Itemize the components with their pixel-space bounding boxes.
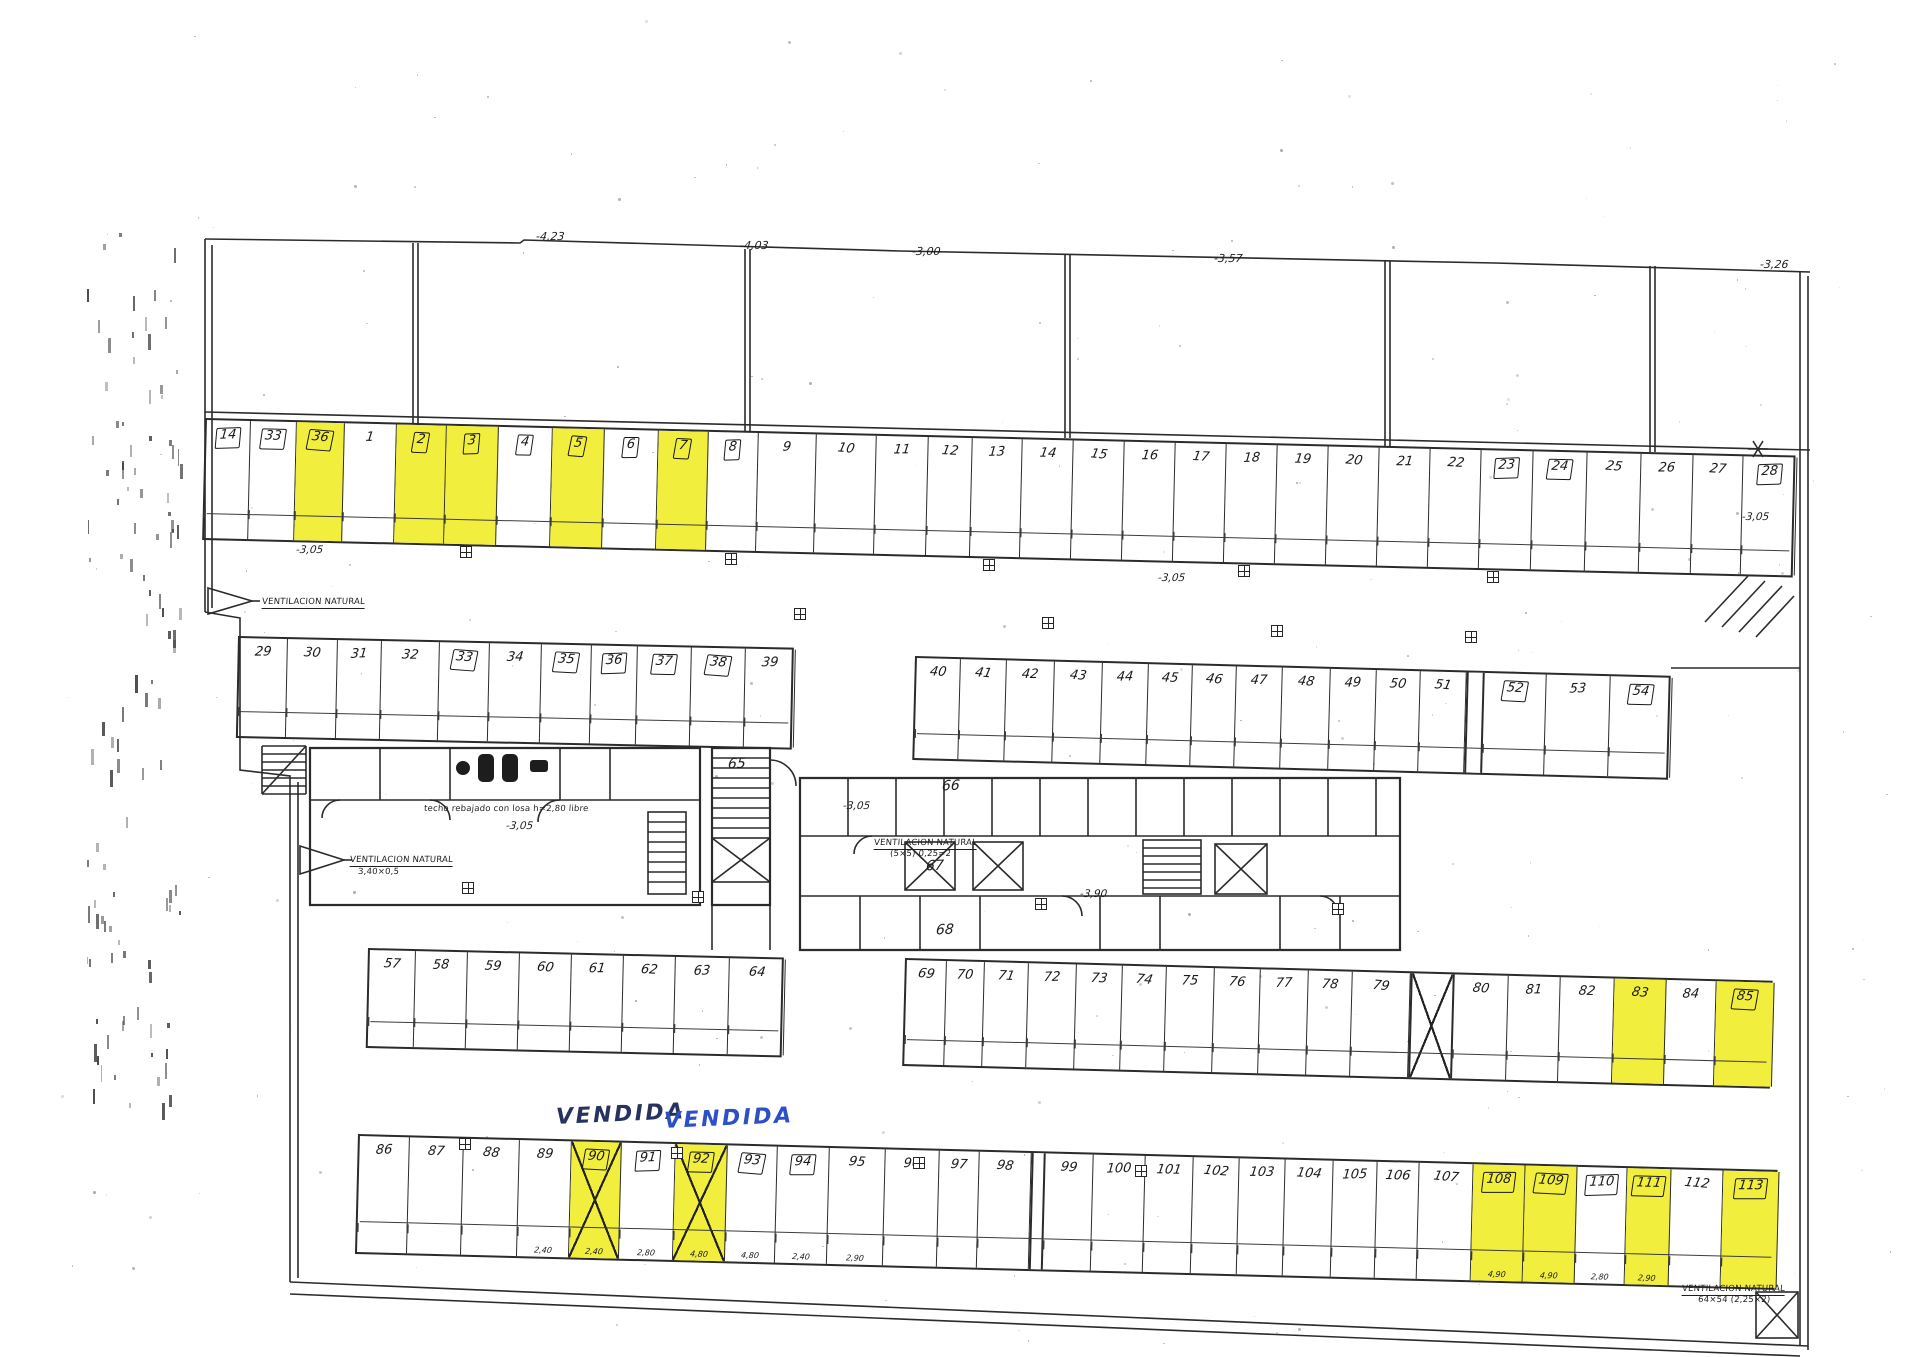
- level-label: -3,05: [505, 820, 533, 832]
- elevation-label: -3,00: [911, 245, 941, 258]
- scan-speck: [246, 570, 248, 572]
- parking-space-47: 47: [1234, 666, 1283, 767]
- parking-space-5: 5: [550, 428, 605, 547]
- dimension-tick: [550, 517, 552, 526]
- scan-speck: [355, 87, 357, 89]
- parking-row-third-row-right: 6970717273747576777879808182838485: [902, 958, 1773, 1089]
- scan-streak: [169, 1095, 172, 1107]
- parking-space-39: 39: [744, 649, 796, 748]
- scan-streak: [159, 594, 161, 609]
- scan-speck: [885, 1300, 887, 1302]
- space-number: 54: [1627, 684, 1655, 706]
- scan-speck: [1188, 913, 1191, 916]
- scan-streak: [122, 422, 124, 426]
- scan-speck: [1852, 948, 1854, 950]
- parking-space-14: 14: [204, 420, 251, 539]
- dimension-tick: [1668, 1256, 1670, 1265]
- space-number: 25: [1604, 460, 1624, 479]
- scan-speck: [1777, 85, 1779, 87]
- parking-space-36: 36: [294, 422, 345, 541]
- space-width-dim: 2,40: [533, 1245, 552, 1254]
- parking-space-19: 19: [1275, 445, 1329, 564]
- dimension-tick: [958, 730, 960, 739]
- scan-speck: [1507, 398, 1510, 401]
- scan-streak: [87, 957, 89, 964]
- parking-space-11: 11: [874, 436, 929, 555]
- parking-space-46: 46: [1190, 665, 1237, 766]
- scan-streak: [113, 892, 115, 897]
- dimension-tick: [813, 523, 815, 532]
- scan-speck: [1282, 1142, 1284, 1144]
- space-number: 62: [639, 963, 659, 982]
- scan-streak: [168, 512, 171, 516]
- dimension-tick: [1234, 737, 1236, 746]
- parking-space-40: 40: [914, 658, 961, 759]
- scan-speck: [1531, 652, 1533, 654]
- space-number: 50: [1388, 677, 1407, 695]
- scan-streak: [130, 559, 133, 572]
- dimension-tick: [413, 1018, 415, 1027]
- scan-speck: [1507, 1091, 1509, 1093]
- space-width-dim: 2,90: [845, 1253, 864, 1262]
- scan-speck: [1834, 63, 1836, 65]
- scan-speck: [1231, 825, 1233, 827]
- space-number: 15: [1088, 448, 1108, 467]
- parking-space-90: 902,40: [569, 1141, 622, 1258]
- column-marker-icon: [462, 882, 474, 894]
- parking-space-52: 52: [1482, 673, 1547, 775]
- scan-speck: [290, 1030, 292, 1032]
- dimension-tick: [1612, 1054, 1614, 1063]
- parking-space-17: 17: [1173, 443, 1227, 562]
- scan-speck: [149, 1216, 152, 1219]
- scan-speck: [1530, 862, 1532, 864]
- scan-streak: [167, 493, 169, 503]
- dimension-tick: [204, 509, 206, 518]
- scan-streak: [101, 1065, 103, 1082]
- dimension-tick: [294, 511, 296, 520]
- scan-speck: [1861, 1170, 1863, 1172]
- scan-streak: [154, 290, 157, 301]
- scan-streak: [103, 244, 106, 250]
- space-number: 60: [535, 960, 555, 979]
- plan-annotation: (5×5) 0,25=2: [890, 849, 952, 859]
- scan-speck: [1863, 979, 1865, 981]
- scan-speck: [882, 1131, 885, 1134]
- scan-speck: [1298, 185, 1300, 187]
- space-number: 29: [254, 645, 273, 663]
- scan-speck: [1528, 935, 1530, 937]
- space-number: 14: [215, 427, 241, 449]
- scan-streak: [180, 464, 183, 478]
- dimension-tick: [1306, 1046, 1308, 1055]
- scan-speck: [1281, 60, 1283, 62]
- parking-space-75: 75: [1164, 967, 1215, 1072]
- space-number: 42: [1021, 668, 1040, 686]
- scan-streak: [173, 640, 176, 653]
- scan-speck: [1159, 325, 1161, 327]
- scan-speck: [1794, 1273, 1796, 1275]
- space-number: 83: [1630, 986, 1650, 1005]
- dimension-tick: [1042, 1240, 1044, 1249]
- room-number: 68: [935, 922, 954, 939]
- scan-speck: [1863, 939, 1865, 941]
- scan-speck: [809, 382, 812, 385]
- scan-speck: [276, 899, 279, 902]
- parking-space-43: 43: [1052, 662, 1103, 763]
- scan-streak: [162, 1103, 164, 1120]
- dimension-tick: [1584, 542, 1586, 551]
- scan-speck: [617, 366, 619, 368]
- scan-speck: [1561, 621, 1563, 623]
- space-number: 69: [916, 967, 936, 986]
- plan-annotation: VENTILACION NATURAL: [262, 597, 366, 609]
- scan-speck: [873, 297, 875, 299]
- scan-speck: [1298, 1328, 1301, 1331]
- space-number: 47: [1250, 674, 1269, 692]
- parking-space-30: 30: [286, 639, 338, 738]
- parking-space-110: 1102,80: [1575, 1167, 1628, 1284]
- dimension-tick: [237, 707, 239, 716]
- space-number: 49: [1344, 676, 1362, 695]
- scan-speck: [1813, 480, 1815, 482]
- scan-streak: [132, 332, 134, 338]
- scan-streak: [169, 440, 172, 446]
- scan-speck: [1488, 1107, 1490, 1109]
- parking-space-81: 81: [1506, 976, 1561, 1081]
- parking-space-6: 6: [602, 429, 659, 548]
- scan-speck: [699, 1064, 701, 1066]
- scan-speck: [417, 74, 419, 76]
- scan-speck: [1432, 358, 1434, 360]
- space-number: 84: [1681, 988, 1700, 1006]
- dimension-tick: [1325, 535, 1327, 544]
- dimension-tick: [1452, 1049, 1454, 1058]
- space-number: 58: [432, 958, 450, 977]
- space-number: 20: [1343, 454, 1363, 473]
- scan-speck: [1002, 422, 1004, 424]
- scan-streak: [123, 951, 126, 958]
- space-number: 27: [1708, 462, 1728, 481]
- scan-streak: [150, 1024, 152, 1038]
- scan-speck: [106, 1194, 108, 1196]
- scan-streak: [148, 334, 151, 350]
- scan-speck: [920, 949, 922, 951]
- scan-speck: [1312, 1324, 1314, 1326]
- parking-space-78: 78: [1306, 971, 1353, 1076]
- parking-space-91: 912,80: [619, 1143, 676, 1260]
- scan-streak: [145, 693, 148, 707]
- scan-streak: [149, 590, 152, 597]
- scan-streak: [98, 320, 101, 334]
- scan-speck: [564, 416, 566, 418]
- space-number: 109: [1532, 1172, 1568, 1195]
- space-number: 41: [973, 666, 993, 685]
- scan-speck: [319, 1171, 322, 1174]
- dimension-tick: [1544, 745, 1546, 754]
- parking-space-22: 22: [1428, 449, 1482, 568]
- space-width-dim: 2,90: [1637, 1273, 1656, 1282]
- scan-streak: [162, 608, 164, 617]
- scan-speck: [507, 922, 509, 924]
- dimension-tick: [656, 520, 658, 529]
- space-number: 39: [761, 656, 780, 674]
- scan-speck: [1090, 80, 1092, 82]
- scan-streak: [160, 385, 163, 394]
- parking-space-60: 60: [518, 953, 572, 1050]
- elevation-label: -4,23: [535, 230, 565, 243]
- scan-speck: [1127, 845, 1129, 847]
- space-number: 17: [1190, 450, 1210, 469]
- dimension-tick: [1019, 528, 1021, 537]
- scan-speck: [616, 1324, 618, 1326]
- parking-space-59: 59: [466, 952, 520, 1049]
- parking-space-15: 15: [1071, 440, 1125, 559]
- dimension-tick: [460, 1226, 462, 1235]
- parking-space-38: 38: [690, 648, 746, 747]
- parking-row-third-row-left: 5758596061626364: [366, 948, 784, 1057]
- scan-streak: [151, 680, 153, 684]
- parking-space-31: 31: [336, 640, 382, 739]
- parking-space-73: 73: [1074, 965, 1123, 1070]
- scan-streak: [160, 760, 162, 769]
- space-number: 12: [940, 444, 960, 463]
- scan-streak: [161, 395, 163, 399]
- parking-space-87: 87: [407, 1137, 464, 1254]
- space-number: 45: [1160, 671, 1179, 689]
- parking-space-12: 12: [926, 437, 973, 556]
- scan-streak: [142, 768, 144, 780]
- dimension-tick: [936, 1238, 938, 1247]
- scan-speck: [1511, 907, 1513, 909]
- dimension-tick: [618, 1230, 620, 1239]
- parking-space-79: 79: [1350, 972, 1411, 1077]
- scan-speck: [1370, 579, 1372, 581]
- scan-speck: [1407, 655, 1409, 657]
- dimension-tick: [774, 1234, 776, 1243]
- space-number: 102: [1202, 1164, 1230, 1184]
- scan-speck: [1517, 430, 1519, 432]
- parking-space-58: 58: [414, 951, 468, 1048]
- scan-speck: [1028, 1340, 1030, 1342]
- parking-space-86: 86: [357, 1136, 410, 1253]
- space-number: 14: [1038, 447, 1057, 465]
- level-label: -3,90: [1079, 888, 1107, 900]
- scan-speck: [1630, 147, 1632, 149]
- scan-speck: [1179, 345, 1181, 347]
- scan-streak: [91, 749, 94, 765]
- scan-speck: [1352, 920, 1354, 922]
- column-marker-icon: [1238, 565, 1250, 577]
- space-number: 64: [747, 966, 766, 984]
- room-number: 67: [925, 858, 944, 875]
- scan-speck: [1163, 1343, 1165, 1345]
- scan-speck: [751, 376, 753, 378]
- scan-speck: [96, 568, 98, 570]
- scan-streak: [107, 1035, 109, 1050]
- column-marker-icon: [459, 1138, 471, 1150]
- space-number: 80: [1471, 982, 1491, 1001]
- parking-space-95: 952,90: [827, 1148, 886, 1265]
- scan-speck: [1172, 250, 1174, 252]
- dimension-tick: [589, 714, 591, 723]
- plan-annotation: VENTILACION NATURAL: [874, 838, 978, 850]
- scan-speck: [72, 1265, 74, 1267]
- scan-streak: [126, 817, 128, 827]
- space-number: 97: [949, 1158, 968, 1176]
- scan-streak: [167, 1023, 170, 1028]
- dimension-tick: [727, 1025, 729, 1034]
- scan-streak: [97, 1056, 99, 1065]
- parking-space-82: 82: [1558, 977, 1615, 1082]
- scan-streak: [89, 558, 91, 562]
- scan-speck: [1890, 1251, 1892, 1253]
- scan-streak: [122, 463, 124, 479]
- column-marker-icon: [725, 553, 737, 565]
- scan-streak: [110, 770, 113, 787]
- dimension-tick: [1624, 1255, 1626, 1264]
- dimension-tick: [517, 1020, 519, 1029]
- space-number: 99: [1059, 1161, 1079, 1180]
- dimension-tick: [743, 718, 745, 727]
- parking-space-57: 57: [368, 950, 416, 1047]
- scan-streak: [172, 445, 174, 459]
- dimension-tick: [248, 510, 250, 519]
- parking-space-34: 34: [488, 643, 542, 742]
- dimension-tick: [1374, 741, 1376, 750]
- scan-speck: [1679, 421, 1681, 423]
- dimension-tick: [944, 1036, 946, 1045]
- parking-row-top-row: 1433361234567891011121314151617181920212…: [202, 418, 1795, 577]
- scan-speck: [614, 951, 616, 953]
- level-label: -3,05: [1157, 572, 1185, 584]
- dimension-tick: [1052, 733, 1054, 742]
- vendida-handwritten-note: VENDIDA: [664, 1103, 795, 1134]
- scan-speck: [1518, 650, 1520, 652]
- parking-space-10: 10: [814, 434, 877, 553]
- dimension-tick: [1418, 742, 1420, 751]
- scan-streak: [156, 534, 158, 540]
- plan-annotation: VENTILACION NATURAL: [350, 855, 454, 867]
- scan-speck: [523, 252, 525, 254]
- scan-speck: [1586, 198, 1588, 200]
- dimension-tick: [1223, 533, 1225, 542]
- dimension-tick: [487, 712, 489, 721]
- space-number: 111: [1631, 1175, 1667, 1197]
- parking-space-99: 99: [1043, 1153, 1094, 1270]
- plan-annotation: 64×54 (2,25×2): [1698, 1295, 1771, 1305]
- space-number: 112: [1682, 1176, 1710, 1196]
- space-number: 16: [1140, 449, 1159, 467]
- space-number: 33: [259, 428, 287, 450]
- dimension-tick: [379, 710, 381, 719]
- shaft-cell: [1408, 973, 1455, 1078]
- dimension-tick: [1074, 1039, 1076, 1048]
- dimension-tick: [1350, 1047, 1352, 1056]
- scan-streak: [137, 1007, 140, 1019]
- dimension-tick: [1004, 731, 1006, 740]
- scan-speck: [1443, 1152, 1445, 1154]
- scan-speck: [293, 740, 295, 742]
- scan-streak: [122, 707, 124, 723]
- dimension-tick: [437, 711, 439, 720]
- column-marker-icon: [983, 559, 995, 571]
- scan-speck: [944, 89, 946, 91]
- space-number: 35: [552, 651, 580, 673]
- dimension-tick: [1120, 1041, 1122, 1050]
- scan-speck: [1018, 1330, 1020, 1332]
- space-number: 76: [1227, 975, 1247, 994]
- scan-streak: [134, 468, 136, 476]
- dimension-tick: [982, 1037, 984, 1046]
- scan-speck: [694, 177, 696, 179]
- space-number: 73: [1089, 972, 1108, 990]
- space-number: 81: [1525, 983, 1543, 1002]
- scan-speck: [1884, 1088, 1886, 1090]
- dimension-tick: [1190, 736, 1192, 745]
- space-width-dim: 4,80: [740, 1251, 759, 1260]
- scan-speck: [332, 586, 334, 588]
- scan-speck: [1314, 928, 1316, 930]
- space-number: 74: [1134, 973, 1154, 992]
- dimension-tick: [904, 1035, 906, 1044]
- dimension-tick: [1740, 545, 1742, 554]
- space-number: 70: [956, 969, 975, 987]
- scan-speck: [757, 167, 759, 169]
- scan-speck: [571, 153, 573, 155]
- parking-space-83: 83: [1612, 979, 1667, 1084]
- dimension-tick: [1121, 531, 1123, 540]
- dimension-tick: [1090, 1242, 1092, 1251]
- dimension-tick: [1190, 1244, 1192, 1253]
- scan-streak: [117, 759, 120, 773]
- scan-streak: [135, 675, 138, 692]
- scan-speck: [354, 185, 357, 188]
- dimension-tick: [1330, 1248, 1332, 1257]
- parking-space-23: 23: [1479, 450, 1534, 569]
- scan-streak: [172, 529, 174, 532]
- scan-streak: [106, 470, 108, 476]
- parking-space-33: 33: [438, 642, 490, 741]
- scan-speck: [618, 198, 621, 201]
- parking-space-93: 934,80: [725, 1145, 778, 1262]
- space-number: 87: [426, 1145, 445, 1163]
- scan-streak: [96, 843, 99, 852]
- parking-space-107: 107: [1417, 1163, 1474, 1280]
- scan-speck: [469, 619, 471, 621]
- dimension-tick: [1506, 1051, 1508, 1060]
- scan-speck: [1276, 1332, 1278, 1334]
- space-number: 53: [1569, 682, 1587, 701]
- scan-speck: [1077, 358, 1079, 360]
- parking-space-62: 62: [622, 956, 676, 1053]
- parking-space-14: 14: [1020, 439, 1074, 558]
- dimension-tick: [1720, 1258, 1722, 1267]
- space-number: 82: [1577, 985, 1596, 1003]
- scan-speck: [788, 41, 791, 44]
- scan-streak: [149, 436, 152, 441]
- parking-space-89: 892,40: [517, 1140, 572, 1257]
- scan-streak: [133, 357, 135, 364]
- column-marker-icon: [692, 891, 704, 903]
- space-number: 4: [515, 434, 534, 455]
- scan-streak: [117, 499, 119, 505]
- space-number: 11: [893, 443, 912, 461]
- space-number: 13: [988, 445, 1006, 464]
- scan-streak: [179, 608, 182, 620]
- scan-streak: [116, 421, 119, 428]
- parking-space-63: 63: [674, 957, 730, 1054]
